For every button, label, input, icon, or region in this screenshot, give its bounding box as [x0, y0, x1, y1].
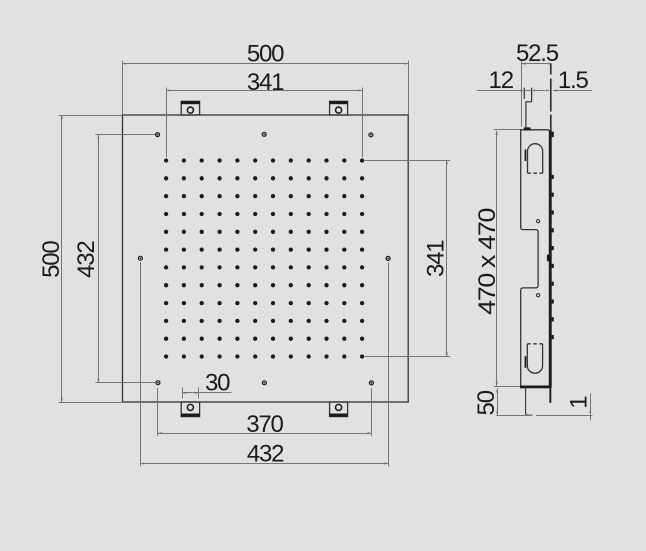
- svg-text:432: 432: [247, 440, 284, 467]
- svg-text:50: 50: [473, 390, 500, 415]
- svg-text:500: 500: [247, 41, 284, 68]
- svg-text:1.5: 1.5: [558, 67, 589, 94]
- svg-text:341: 341: [423, 240, 450, 277]
- svg-text:30: 30: [205, 369, 230, 396]
- svg-text:500: 500: [38, 241, 65, 278]
- svg-text:1: 1: [566, 396, 593, 409]
- svg-text:341: 341: [247, 69, 284, 96]
- svg-text:52.5: 52.5: [516, 40, 559, 67]
- svg-text:12: 12: [489, 67, 514, 94]
- svg-text:470 x 470: 470 x 470: [474, 208, 501, 315]
- svg-text:370: 370: [246, 411, 283, 438]
- svg-text:432: 432: [73, 241, 100, 278]
